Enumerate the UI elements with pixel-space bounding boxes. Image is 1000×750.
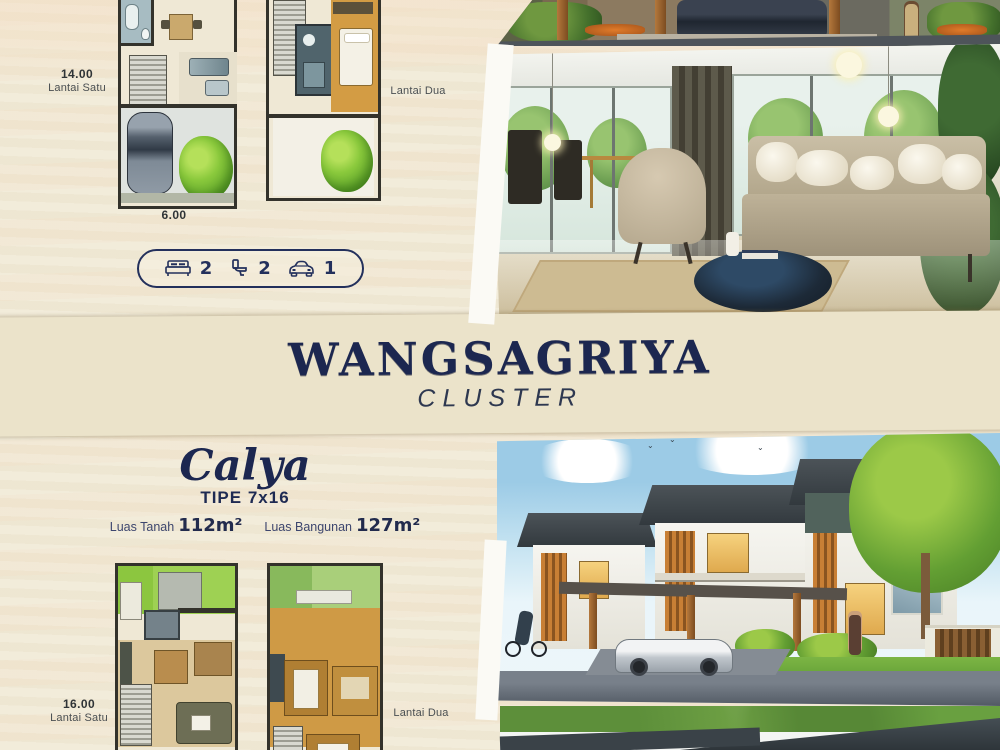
books-on-table	[742, 250, 778, 259]
carport-count: 1	[324, 258, 337, 279]
sink	[303, 34, 315, 46]
dining-area	[161, 6, 199, 50]
dimension-width-label: 16.00	[63, 697, 95, 711]
bathroom-area	[144, 610, 180, 640]
dining-table	[154, 650, 188, 684]
silver-car	[615, 639, 733, 673]
shower	[303, 62, 325, 88]
kitchen-counter	[189, 58, 229, 76]
bottom-floor2-label: Lantai Dua	[386, 707, 456, 720]
kitchen-area	[179, 52, 237, 104]
bed	[339, 28, 373, 86]
bedroom-two	[332, 666, 378, 716]
floorplan-bottom-floor2	[267, 563, 383, 750]
toilet-fixture	[141, 28, 150, 40]
photo-house-entrance	[497, 0, 1000, 46]
sofa-pillow	[850, 156, 894, 190]
armchair	[618, 148, 706, 244]
photo-roofline-strip	[500, 706, 1000, 750]
road	[497, 671, 1000, 711]
wood-fins	[541, 553, 567, 641]
kitchen-dining-area	[118, 640, 235, 747]
sofa-pillow	[898, 144, 946, 184]
roof-garden-area	[270, 566, 380, 608]
top-depth-label: 6.00	[152, 209, 196, 223]
bedroom-count: 2	[200, 258, 213, 279]
coffee-table	[694, 250, 832, 312]
brand-title: WANGSAGRIYA	[288, 334, 712, 383]
top-floor2-label: Lantai Dua	[383, 85, 453, 98]
parked-car	[677, 0, 827, 36]
building-area-label: Luas Bangunan	[264, 520, 352, 534]
window-mullion	[612, 88, 615, 252]
sofa-pillow	[796, 150, 848, 186]
photo-living-room	[490, 44, 1000, 314]
garden-bush	[321, 130, 373, 192]
pendant-cord	[888, 44, 889, 110]
bathtub	[125, 4, 139, 30]
toilet-icon	[229, 259, 249, 279]
cyclist-body	[514, 610, 534, 646]
dining-table	[169, 14, 193, 40]
person-standing	[849, 615, 861, 655]
sofa-leg	[968, 254, 972, 282]
bathroom-area	[295, 24, 333, 96]
building-area-value: 127m²	[356, 515, 420, 536]
unit-type-name: Calya	[140, 444, 350, 488]
bathroom-area	[121, 0, 154, 46]
stairs	[273, 726, 303, 750]
floorplan-top-floor2	[266, 0, 381, 201]
car-wheel	[630, 658, 648, 676]
dresser	[333, 2, 373, 14]
car-wheel	[700, 658, 718, 676]
sofa-seat	[742, 194, 990, 256]
bird: ⌄	[757, 443, 764, 452]
floor-two-label: Lantai Dua	[390, 85, 445, 97]
cloud	[527, 439, 647, 483]
brand-subtitle: CLUSTER	[417, 383, 583, 412]
dimension-width-label: 14.00	[61, 67, 93, 81]
unit-specs-pill: 2 2 1	[137, 249, 364, 288]
building-area: Luas Bangunan127m²	[264, 515, 420, 536]
bird: ⌄	[669, 435, 676, 444]
land-area: Luas Tanah112m²	[110, 515, 243, 536]
driveway	[121, 193, 234, 203]
bed	[293, 669, 319, 709]
lit-window	[707, 533, 749, 573]
car-top-view	[127, 112, 173, 194]
sofa	[176, 702, 232, 744]
bedroom-one	[284, 660, 328, 716]
floorplan-bottom-floor1	[115, 563, 238, 750]
land-area-label: Luas Tanah	[110, 520, 174, 534]
shrub	[507, 2, 602, 42]
ceiling-light	[836, 52, 862, 78]
pendant-light	[878, 106, 899, 127]
garden-bush	[179, 136, 233, 200]
unit-type-size: TIPE 7x16	[140, 488, 350, 508]
chair	[161, 20, 170, 29]
sofa-pillow	[756, 142, 798, 182]
bed	[317, 743, 349, 750]
wood-pillar	[557, 0, 568, 40]
top-floor1-label: 14.00 Lantai Satu	[42, 68, 112, 95]
roof-left	[517, 513, 657, 547]
upper-floor-area	[270, 608, 380, 747]
car-icon	[288, 260, 315, 278]
carport-area	[121, 108, 234, 196]
bedroom-three	[306, 734, 360, 750]
patio	[296, 590, 352, 604]
toilet-count: 2	[258, 258, 271, 279]
floor-two-label: Lantai Dua	[393, 707, 448, 719]
patio	[158, 572, 202, 610]
bedroom-area	[331, 0, 378, 112]
bottom-floor1-label: 16.00 Lantai Satu	[46, 698, 112, 725]
kitchen-island	[205, 80, 229, 96]
dining-chair	[554, 140, 582, 200]
photo-house-exterior: ⌄ ⌄ ⌄	[497, 433, 1000, 706]
vase	[726, 232, 739, 256]
land-area-value: 112m²	[178, 515, 242, 536]
stairs	[120, 684, 152, 746]
pendant-cord	[552, 44, 553, 136]
bathroom-area	[270, 654, 285, 702]
stairs	[129, 55, 167, 107]
floorplan-top-floor1	[118, 0, 237, 209]
coffee-table	[191, 715, 211, 731]
dining-chair	[508, 130, 542, 204]
chair	[193, 20, 202, 29]
floor-one-label: Lantai Satu	[50, 712, 108, 724]
pillow	[344, 33, 370, 43]
bird: ⌄	[647, 441, 654, 450]
carport-post	[589, 593, 597, 649]
brand-band: WANGSAGRIYA CLUSTER	[0, 310, 1000, 436]
storage	[120, 582, 142, 620]
pendant-light	[544, 134, 561, 151]
floor-one-label: Lantai Satu	[48, 82, 106, 94]
wood-gate	[935, 629, 991, 659]
dimension-depth-label: 6.00	[162, 208, 187, 222]
unit-area-specs: Luas Tanah112m² Luas Bangunan127m²	[105, 515, 425, 536]
sofa-pillow	[942, 154, 982, 190]
rug	[341, 677, 369, 699]
brochure-page: 14.00 Lantai Satu Lantai Dua 6.00 2 2	[0, 0, 1000, 750]
bicycle-wheel	[531, 641, 547, 657]
bicycle-wheel	[505, 641, 521, 657]
bed-icon	[165, 260, 191, 278]
work-desk	[194, 642, 232, 676]
terrace-area	[273, 118, 374, 196]
brass-table-leg	[590, 160, 593, 208]
wall	[178, 608, 235, 613]
